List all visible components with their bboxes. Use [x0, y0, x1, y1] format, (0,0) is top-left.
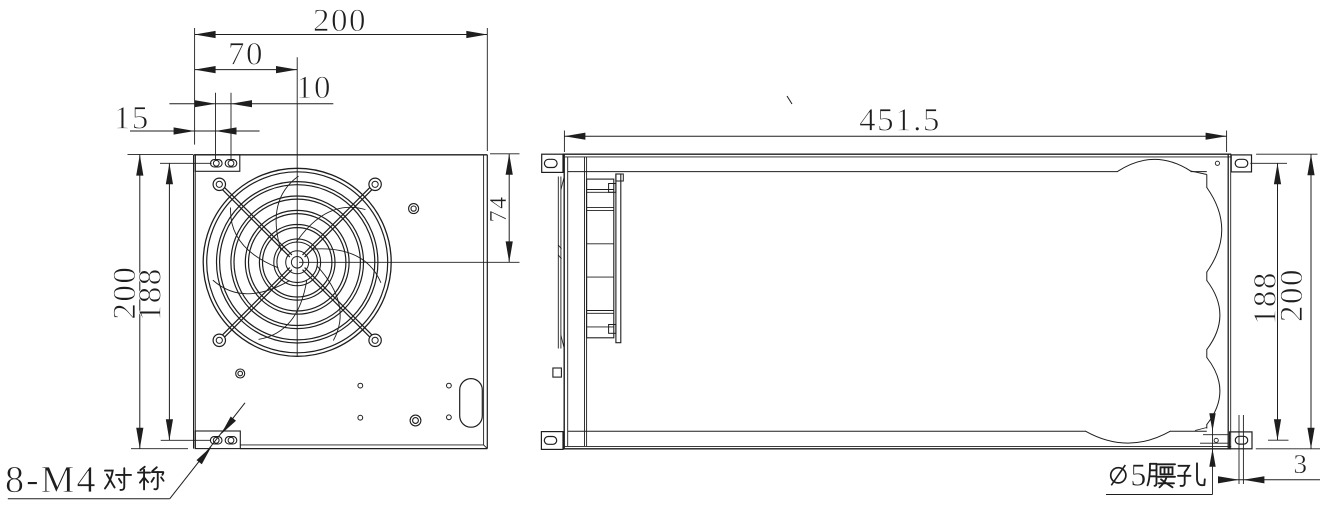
svg-text:188: 188 [133, 267, 169, 321]
svg-text:74: 74 [486, 195, 512, 222]
svg-text:3: 3 [1294, 449, 1309, 479]
svg-text:15: 15 [114, 101, 150, 137]
svg-text:200: 200 [1274, 268, 1310, 322]
svg-text:8-M4: 8-M4 [5, 459, 97, 501]
svg-text:70: 70 [228, 36, 264, 72]
svg-text:10: 10 [296, 70, 332, 106]
svg-text:5: 5 [1131, 458, 1147, 493]
svg-text:200: 200 [313, 3, 367, 39]
svg-text:451.5: 451.5 [859, 103, 941, 139]
